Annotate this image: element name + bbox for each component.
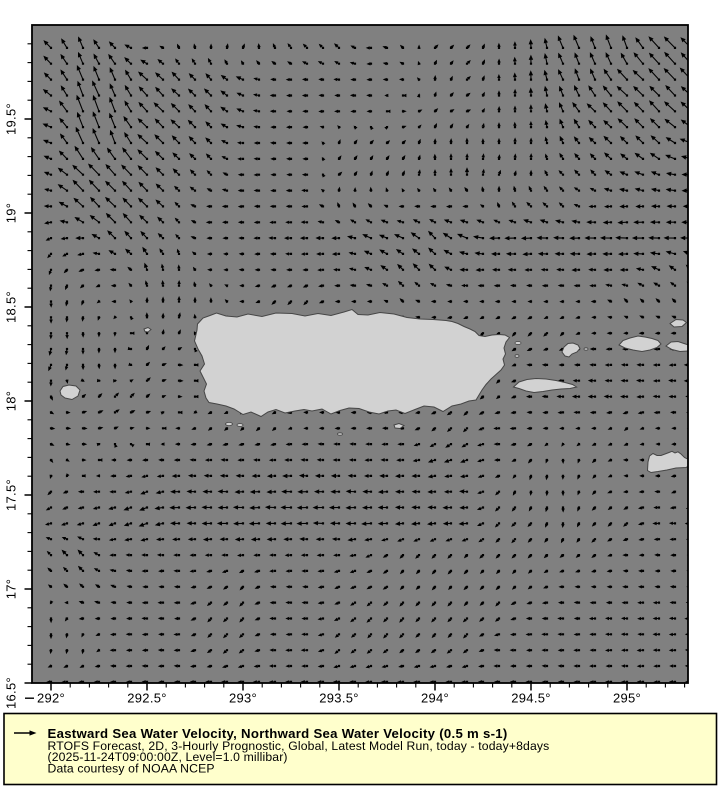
svg-text:19.5°: 19.5° <box>4 103 19 135</box>
svg-text:292°: 292° <box>37 691 65 706</box>
svg-text:18°: 18° <box>4 391 19 412</box>
svg-text:295°: 295° <box>613 691 641 706</box>
svg-text:294°: 294° <box>421 691 449 706</box>
svg-text:293°: 293° <box>229 691 257 706</box>
svg-text:Data courtesy of NOAA NCEP: Data courtesy of NOAA NCEP <box>48 761 215 775</box>
svg-text:293.5°: 293.5° <box>319 691 359 706</box>
svg-text:16.5°: 16.5° <box>4 677 19 709</box>
svg-text:17.5°: 17.5° <box>4 479 19 511</box>
svg-text:17°: 17° <box>4 579 19 600</box>
svg-text:19°: 19° <box>4 203 19 224</box>
svg-text:18.5°: 18.5° <box>4 291 19 323</box>
svg-text:294.5°: 294.5° <box>511 691 551 706</box>
svg-text:292.5°: 292.5° <box>127 691 167 706</box>
